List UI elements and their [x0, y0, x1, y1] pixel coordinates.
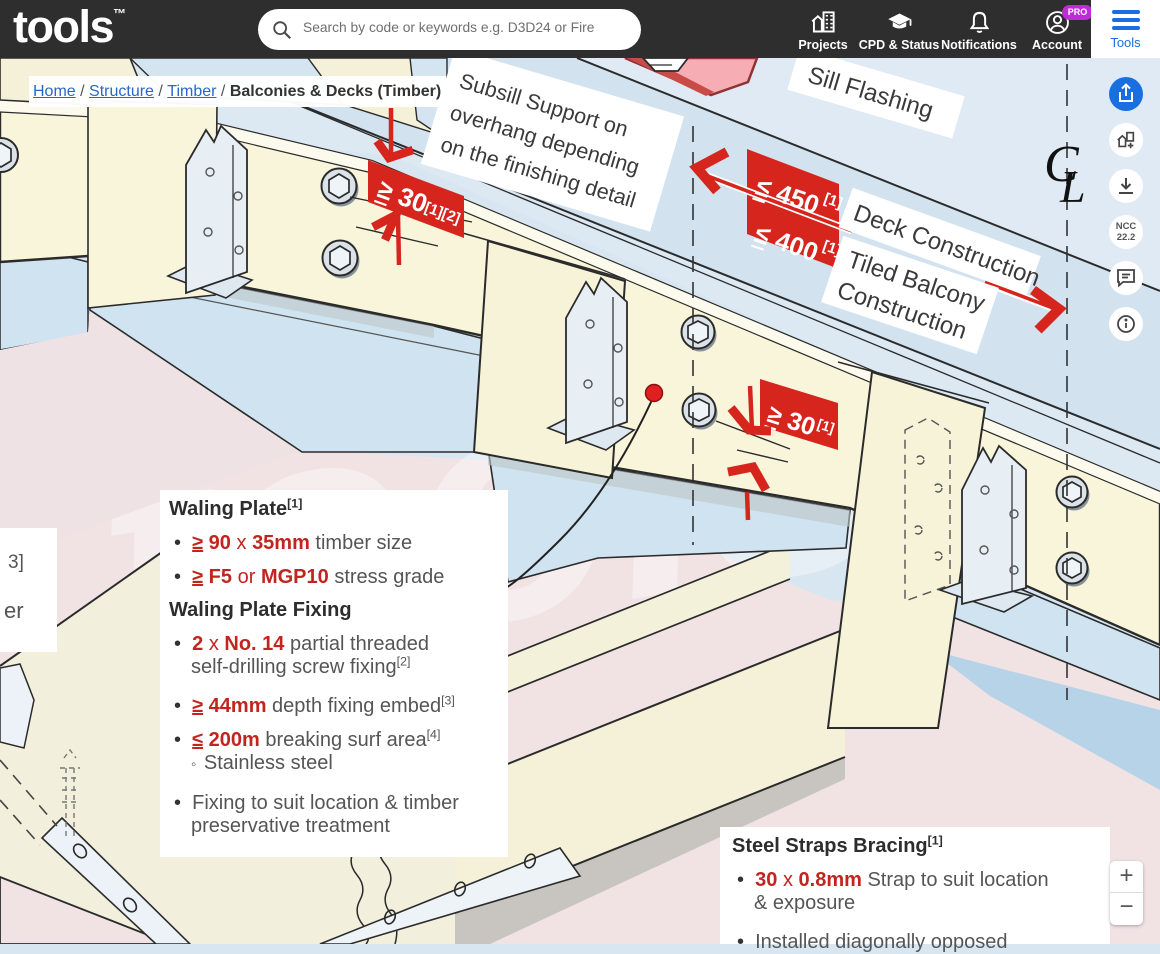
svg-text:3]: 3]: [8, 552, 24, 573]
svg-text:er: er: [4, 598, 24, 623]
svg-text:L: L: [1059, 161, 1086, 212]
